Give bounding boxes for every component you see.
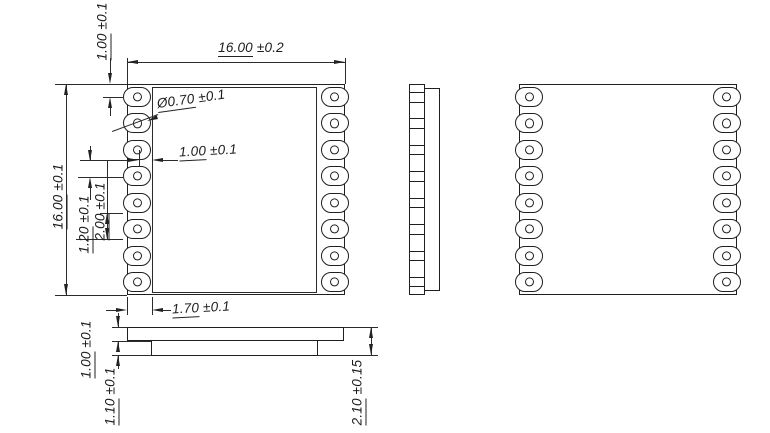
- castellated-pad: [123, 113, 151, 133]
- side-pad-band: [409, 145, 425, 156]
- pad-hole: [133, 225, 142, 234]
- pad-hole: [525, 277, 534, 286]
- pad-hole: [525, 251, 534, 260]
- pad-hole: [722, 251, 731, 260]
- shield-outline: [152, 87, 317, 293]
- side-pad-band: [409, 92, 425, 103]
- side-pad-band: [409, 277, 425, 288]
- castellated-pad: [515, 193, 543, 213]
- castellated-pad: [123, 219, 151, 239]
- castellated-pad: [713, 193, 741, 213]
- dim-pin1-offset: 1.00±0.1: [95, 0, 110, 69]
- arrowhead: [127, 60, 138, 64]
- pad-hole: [722, 92, 731, 101]
- castellated-pad: [321, 219, 349, 239]
- arrowhead: [369, 344, 373, 355]
- pad-hole: [330, 251, 339, 260]
- pad-hole: [525, 119, 534, 128]
- castellated-pads-left-2: [515, 87, 543, 292]
- pad-hole: [133, 172, 142, 181]
- arrowhead: [88, 150, 92, 161]
- dim-pad-pitch: 2.00±0.1: [93, 175, 108, 249]
- arrowhead: [152, 158, 163, 162]
- side-view-pad-bands: [409, 92, 425, 288]
- pad-hole: [722, 119, 731, 128]
- castellated-pads-right-2: [713, 87, 741, 292]
- pad-hole: [722, 145, 731, 154]
- pad-hole: [525, 172, 534, 181]
- dim-top-width: 16.00±0.2: [196, 40, 306, 55]
- castellated-pad: [713, 166, 741, 186]
- side-pad-band: [409, 224, 425, 235]
- side-pad-band: [409, 118, 425, 129]
- pad-hole: [133, 277, 142, 286]
- pad-hole: [722, 277, 731, 286]
- dimension-line: [66, 84, 67, 295]
- extension-line: [103, 97, 123, 98]
- castellated-pad: [123, 272, 151, 292]
- castellated-pad: [515, 87, 543, 107]
- arrowhead: [116, 341, 120, 352]
- castellated-pad: [321, 140, 349, 160]
- dim-pad-gap: 1.20±0.1: [77, 188, 92, 262]
- arrowhead: [64, 84, 68, 95]
- pad-hole: [722, 225, 731, 234]
- extension-line: [55, 295, 127, 296]
- dimension-line: [106, 310, 116, 311]
- extension-line: [112, 327, 127, 328]
- castellated-pad: [321, 272, 349, 292]
- pad-hole: [330, 198, 339, 207]
- castellated-pad: [713, 87, 741, 107]
- castellated-pad: [123, 193, 151, 213]
- dim-base-thickness: 1.10±0.1: [103, 361, 118, 433]
- pad-hole: [330, 119, 339, 128]
- pad-hole: [330, 277, 339, 286]
- side-pad-band: [409, 198, 425, 209]
- castellated-pad: [515, 219, 543, 239]
- side-pad-band: [409, 251, 425, 262]
- dimension-line: [127, 62, 345, 63]
- castellated-pad: [321, 87, 349, 107]
- castellated-pad: [321, 166, 349, 186]
- castellated-pad: [713, 272, 741, 292]
- side-view-shield: [424, 88, 440, 291]
- castellated-pad: [321, 113, 349, 133]
- arrowhead: [334, 60, 345, 64]
- pad-hole: [722, 172, 731, 181]
- extension-line: [152, 297, 153, 315]
- arrowhead: [108, 73, 112, 84]
- arrowhead: [152, 308, 163, 312]
- extension-line: [127, 297, 128, 315]
- castellated-pad: [713, 113, 741, 133]
- pad-hole: [525, 145, 534, 154]
- castellated-pad: [515, 113, 543, 133]
- pad-hole: [133, 198, 142, 207]
- pad-hole: [525, 225, 534, 234]
- castellated-pads-right: [321, 87, 349, 292]
- dim-left-height: 16.00±0.1: [51, 155, 66, 239]
- castellated-pad: [713, 140, 741, 160]
- castellated-pad: [713, 219, 741, 239]
- pad-hole: [330, 145, 339, 154]
- pad-hole: [525, 92, 534, 101]
- side-pad-band: [409, 171, 425, 182]
- dim-pcb-thickness: 1.00±0.1: [79, 314, 94, 386]
- arrowhead: [369, 327, 373, 338]
- castellated-pad: [123, 246, 151, 266]
- pad-hole: [330, 92, 339, 101]
- module-bottom-view: [519, 84, 737, 295]
- pad-hole: [330, 225, 339, 234]
- pad-hole: [133, 92, 142, 101]
- pad-hole: [525, 198, 534, 207]
- profile-base-slab: [151, 340, 318, 356]
- extension-line: [345, 58, 346, 84]
- castellated-pad: [123, 87, 151, 107]
- arrowhead: [128, 158, 139, 162]
- dimension-line: [163, 310, 171, 311]
- castellated-pad: [515, 246, 543, 266]
- castellated-pad: [123, 140, 151, 160]
- arrowhead: [116, 308, 127, 312]
- pad-hole: [330, 172, 339, 181]
- castellated-pad: [713, 246, 741, 266]
- dim-shield-inset: 1.70±0.1: [172, 298, 231, 316]
- arrowhead: [116, 316, 120, 327]
- castellated-pad: [515, 272, 543, 292]
- arrowhead: [108, 97, 112, 108]
- dim-pad-length: 1.00±0.1: [179, 141, 238, 159]
- pad-hole: [133, 251, 142, 260]
- arrowhead: [88, 177, 92, 188]
- castellated-pad: [515, 140, 543, 160]
- extension-line: [344, 327, 378, 328]
- extension-line: [139, 150, 140, 167]
- pad-hole: [722, 198, 731, 207]
- castellated-pad: [515, 166, 543, 186]
- technical-drawing: 16.00±0.2 1.00±0.1 16.00±0.1 1.20±0.1 2.…: [0, 0, 770, 433]
- dimension-line: [163, 160, 178, 161]
- castellated-pad: [321, 246, 349, 266]
- castellated-pad: [321, 193, 349, 213]
- dim-total-thickness: 2.10±0.15: [350, 354, 365, 432]
- castellated-pad: [123, 166, 151, 186]
- arrowhead: [64, 284, 68, 295]
